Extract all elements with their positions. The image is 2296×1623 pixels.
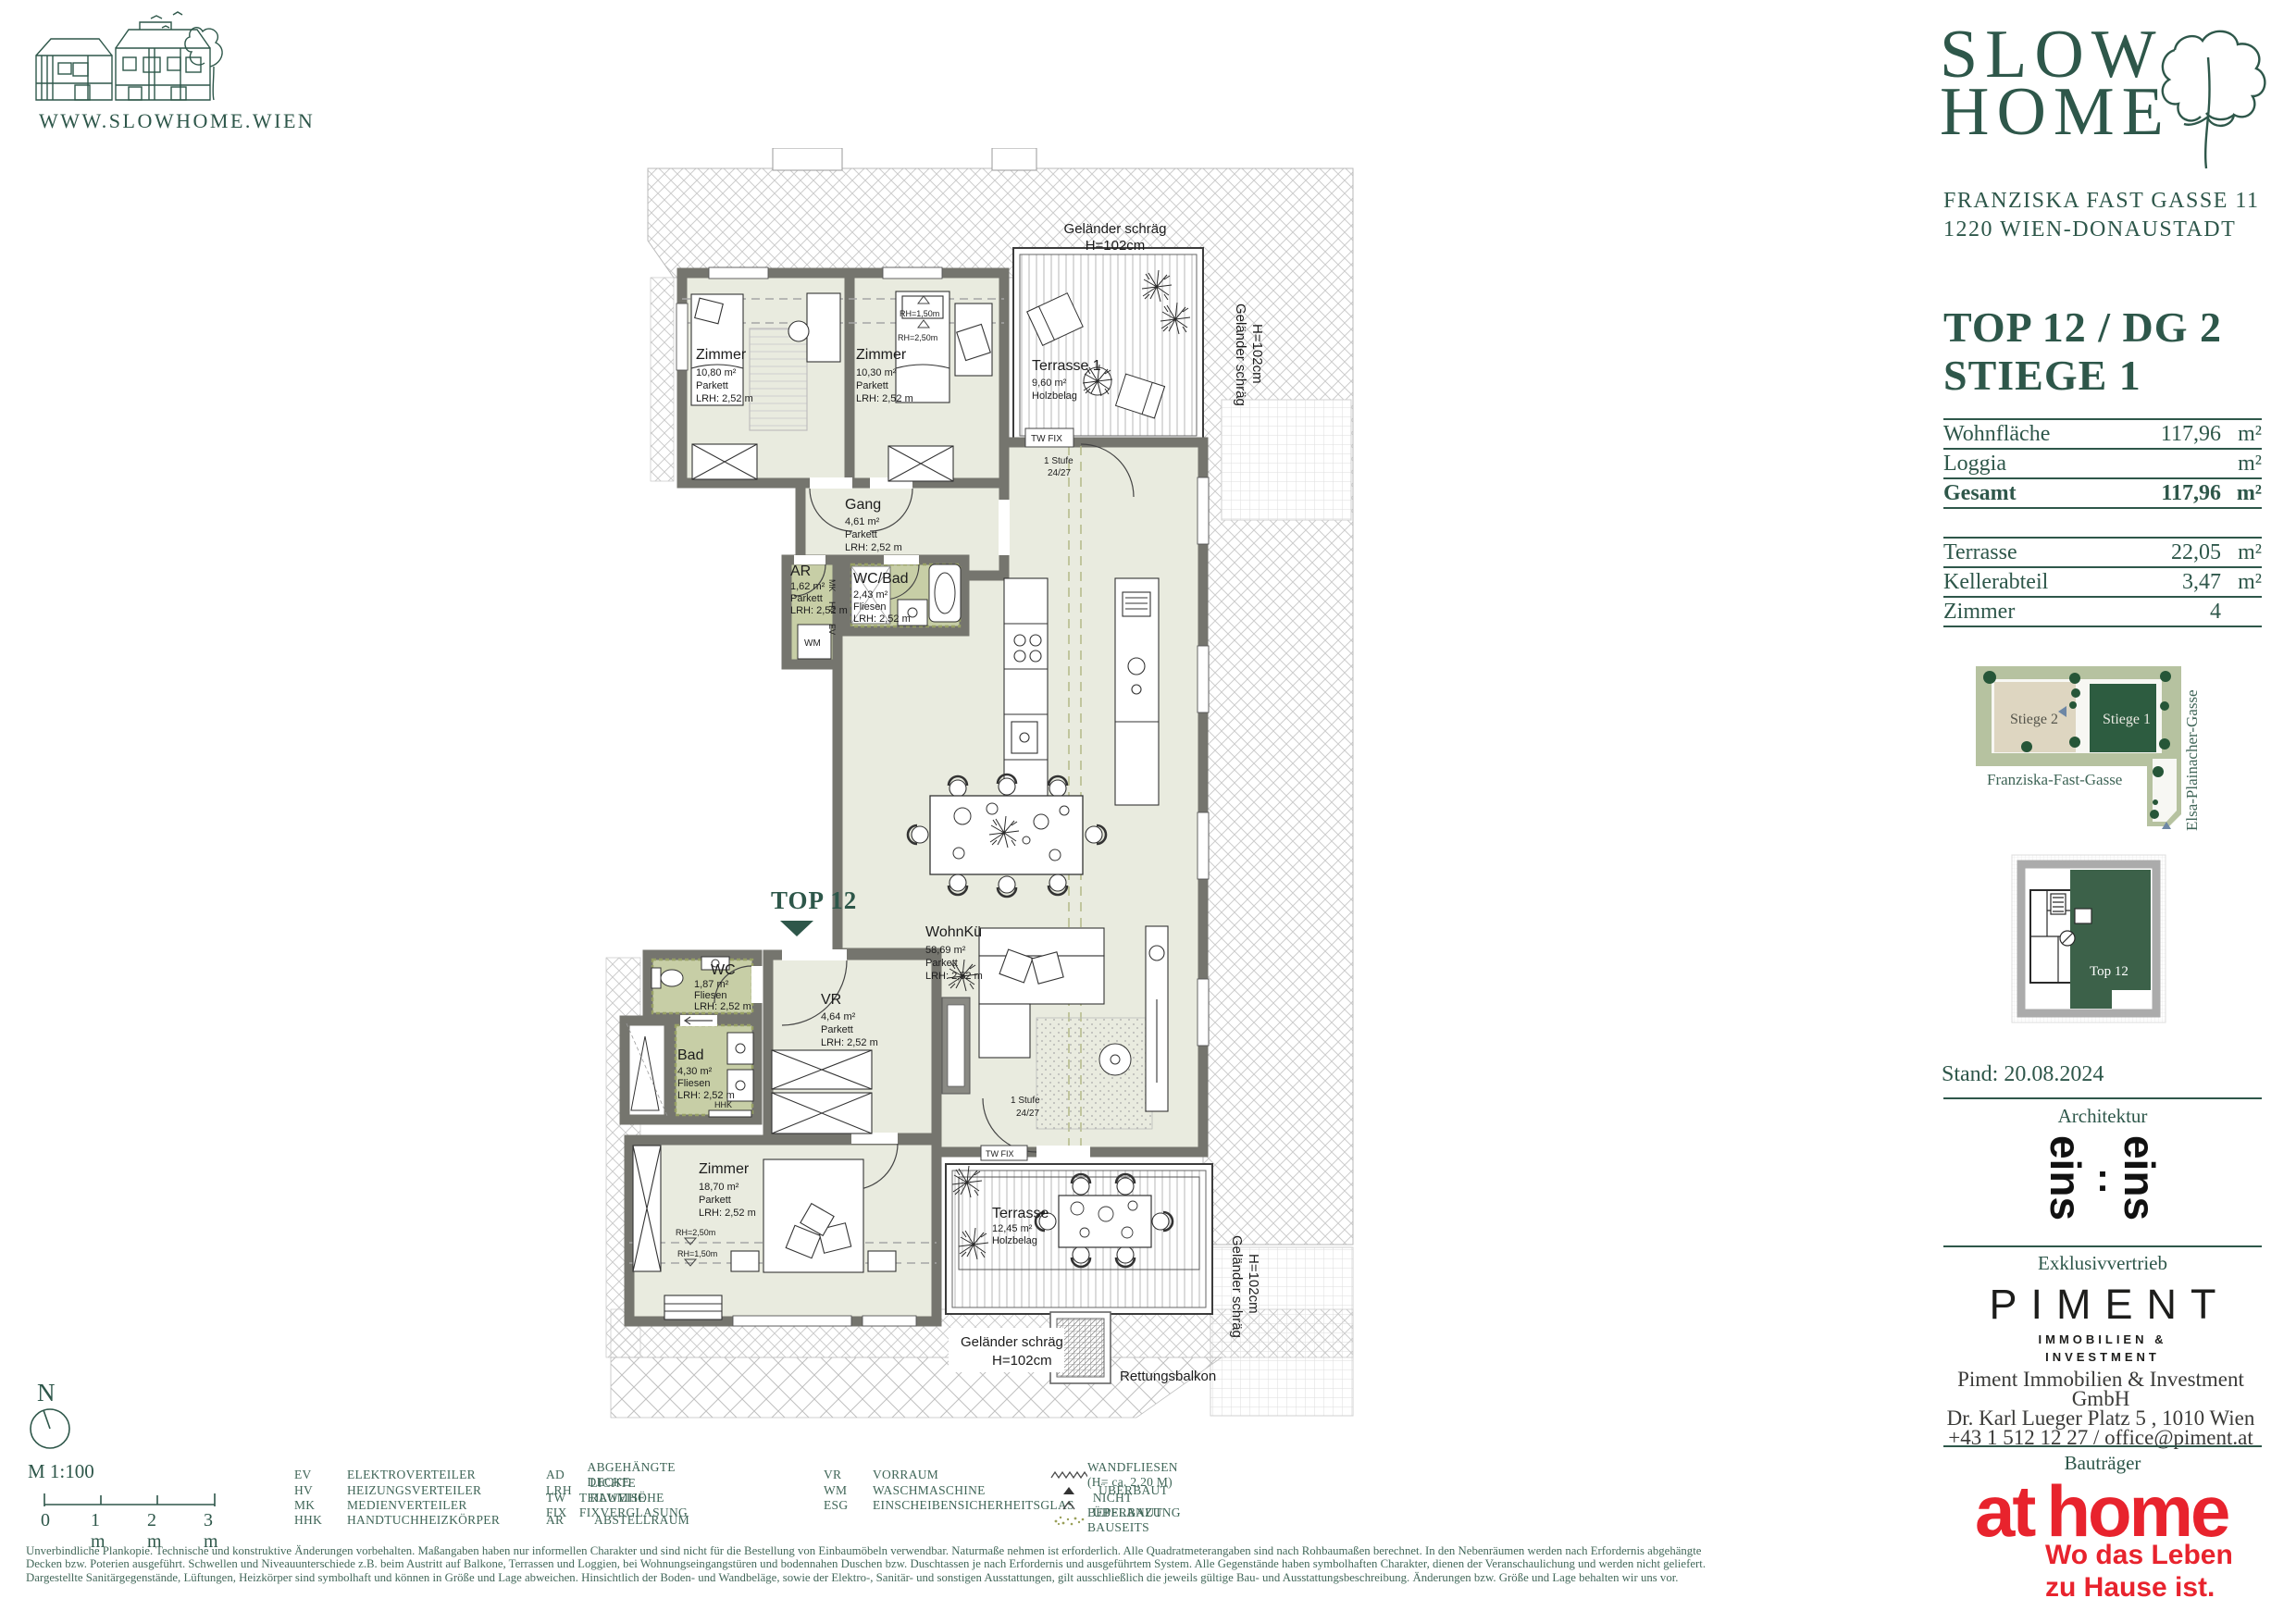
logo-word-home: HOME	[1940, 83, 2171, 141]
room-name: AR	[790, 564, 811, 579]
slowhome-logo: SLOW HOME	[1940, 26, 2171, 141]
floor-plan-drawing: Terrasse 1 9,60 m² Holzbelag	[574, 148, 1370, 1462]
room-name: Terrasse 1	[1032, 358, 1101, 374]
room-lrh: LRH: 2,52 m	[853, 613, 911, 625]
area-table: Wohnfläche 117,96 m² Loggia m² Gesamt 11…	[1943, 418, 2262, 627]
piment-contact: Piment Immobilien & Investment GmbH Dr. …	[1934, 1369, 2267, 1447]
room-area: 12,45 m²	[992, 1223, 1033, 1234]
floorplan-sheet: WWW.SLOWHOME.WIEN SLOW HOME FRANZISKA FA…	[0, 0, 2296, 1623]
legend-item: HHKHANDTUCHHEIZKÖRPER	[294, 1513, 500, 1528]
disclaimer-line3: Dargestellte Sanitärgegenstände, Lüftung…	[26, 1571, 1923, 1584]
twfix-label: TW FIX	[1031, 434, 1062, 444]
address-line-2: 1220 WIEN-DONAUSTADT	[1943, 216, 2259, 244]
stufe-label: 24/27	[1048, 468, 1071, 478]
tree-logo-icon	[2143, 20, 2273, 173]
sideboard-icon	[1146, 926, 1168, 1111]
room-name: Bad	[677, 1047, 703, 1063]
legend-item: ARABSTELLRAUM	[546, 1513, 702, 1528]
svg-text:Geländer schräg: Geländer schräg	[1233, 304, 1248, 406]
table-row: Wohnfläche 117,96 m²	[1943, 418, 2262, 448]
chair-icon	[788, 321, 809, 341]
site-plan: Stiege 2 Stiege 1 Franziska-Fast-Gasse E…	[1971, 659, 2249, 844]
einszueins-architektur-logo: eins : eins	[2027, 1121, 2178, 1234]
room-lrh: LRH: 2,52 m	[925, 971, 983, 982]
svg-text:RH=1,50m: RH=1,50m	[900, 309, 939, 318]
room-lrh: LRH: 2,52 m	[694, 1001, 751, 1012]
room-name: WC/Bad	[853, 571, 909, 587]
athome-part1: at	[1975, 1470, 2033, 1552]
room-area: 58,69 m²	[925, 945, 966, 956]
piment-address: Dr. Karl Lueger Platz 5 , 1010 Wien	[1934, 1408, 2267, 1428]
unit-title-line1: TOP 12 / DG 2	[1943, 304, 2222, 352]
plan-date: Stand: 20.08.2024	[1942, 1062, 2104, 1087]
room-floor: Fliesen	[853, 601, 886, 613]
athome-tagline: Wo das Leben zu Hause ist.	[2045, 1539, 2233, 1604]
room-area: 4,30 m²	[677, 1066, 713, 1077]
table-row: Zimmer 4	[1943, 596, 2262, 626]
stufe-label: 1 Stufe	[1011, 1096, 1040, 1106]
piment-logo: PIMENT	[1943, 1281, 2262, 1329]
legend-column-2: ADABGEHÄNGTE DECKE LRHLICHTE RAUMHÖHE TW…	[546, 1468, 702, 1529]
table-row-total: Gesamt 117,96 m²	[1943, 477, 2262, 507]
legend-symbol-item: WANDFLIESEN (H= ca. 2,20 M)	[1050, 1468, 1192, 1482]
project-address: FRANZISKA FAST GASSE 11 1220 WIEN-DONAUS…	[1943, 187, 2259, 244]
row-unit: m²	[2221, 481, 2262, 506]
street-label-bottom: Franziska-Fast-Gasse	[1987, 771, 2122, 788]
piment-sub-line1: IMMOBILIEN &	[1943, 1331, 2262, 1348]
row-value: 22,05	[2141, 540, 2221, 565]
room-floor: Fliesen	[694, 990, 726, 1001]
ev-label: EV	[827, 624, 837, 635]
svg-text:RH=2,50m: RH=2,50m	[676, 1228, 715, 1237]
kitchen-island	[1115, 578, 1159, 805]
wm-label: WM	[804, 638, 821, 649]
room-name: Gang	[845, 497, 881, 513]
terrasse-2: Terrasse 12,45 m² Holzbelag	[946, 1164, 1212, 1314]
room-name: Zimmer	[699, 1161, 750, 1177]
top12-marker-label: TOP 12	[771, 886, 857, 914]
nightstand-icon	[731, 1251, 759, 1271]
room-floor: Parkett	[845, 529, 877, 540]
row-value: 3,47	[2141, 570, 2221, 595]
tagline-line2: zu Hause ist.	[2045, 1571, 2233, 1604]
rettungsbalkon-label: Rettungsbalkon	[1120, 1369, 1216, 1384]
desk-icon	[807, 293, 840, 362]
site-stiege1-label: Stiege 1	[2103, 712, 2151, 727]
row-label: Gesamt	[1943, 481, 2141, 506]
legend-column-symbols: WANDFLIESEN (H= ca. 2,20 M) ÜBERBAUT NIC…	[1050, 1468, 1192, 1529]
twfix-label: TW FIX	[986, 1149, 1014, 1158]
row-label: Terrasse	[1943, 540, 2141, 565]
room-lrh: LRH: 2,52 m	[856, 393, 913, 404]
room-area: 10,30 m²	[856, 367, 897, 378]
area-table-group-living: Wohnfläche 117,96 m² Loggia m² Gesamt 11…	[1943, 418, 2262, 509]
piment-phone-email: +43 1 512 12 27 / office@piment.at	[1934, 1428, 2267, 1447]
terrasse-1: Terrasse 1 9,60 m² Holzbelag	[1013, 248, 1203, 442]
table-row: Loggia m²	[1943, 448, 2262, 477]
kitchen-counter	[1004, 578, 1048, 805]
legend-item: EVELEKTROVERTEILER	[294, 1468, 500, 1482]
divider	[1943, 1097, 2262, 1099]
room-lrh: LRH: 2,52 m	[845, 542, 902, 553]
row-value: 4	[2141, 600, 2221, 625]
row-label: Wohnfläche	[1943, 422, 2141, 447]
divider	[1943, 1245, 2262, 1247]
table-row: Terrasse 22,05 m²	[1943, 537, 2262, 566]
room-area: 10,80 m²	[696, 367, 737, 378]
stufe-label: 1 Stufe	[1044, 456, 1074, 466]
top12-arrow-icon	[780, 921, 813, 936]
building-sketch-illustration	[32, 11, 227, 107]
website-url: WWW.SLOWHOME.WIEN	[39, 109, 315, 133]
scale-label: M 1:100	[28, 1460, 94, 1483]
eins-word-left: eins	[2041, 1135, 2091, 1220]
room-floor: Parkett	[856, 380, 888, 391]
tagline-line1: Wo das Leben	[2045, 1539, 2233, 1571]
row-unit: m²	[2221, 452, 2262, 477]
piment-company: Piment Immobilien & Investment GmbH	[1934, 1369, 2267, 1408]
row-label: Zimmer	[1943, 600, 2141, 625]
nightstand-icon	[868, 1251, 896, 1271]
svg-text:RH=2,50m: RH=2,50m	[898, 333, 937, 342]
legend-column-1: EVELEKTROVERTEILER HVHEIZUNGSVERTEILER M…	[294, 1468, 500, 1529]
room-floor: Parkett	[925, 958, 958, 969]
unit-title: TOP 12 / DG 2 STIEGE 1	[1943, 304, 2222, 400]
svg-text:Geländer schräg: Geländer schräg	[961, 1334, 1063, 1350]
room-area: 4,61 m²	[845, 516, 880, 527]
room-area: 1,62 m²	[790, 581, 825, 592]
room-name: Zimmer	[856, 347, 907, 363]
room-lrh: LRH: 2,52 m	[821, 1037, 878, 1048]
exterior-step	[664, 1295, 722, 1319]
unit-title-line2: STIEGE 1	[1943, 352, 2222, 400]
room-name: WC	[711, 962, 736, 978]
room-floor: Parkett	[696, 380, 728, 391]
hv-label: HV	[827, 601, 837, 613]
row-value: 117,96	[2141, 481, 2221, 506]
row-label: Loggia	[1943, 452, 2141, 477]
legend-item: VRVORRAUM	[824, 1468, 1074, 1482]
divider	[1943, 1445, 2262, 1447]
row-label: Kellerabteil	[1943, 570, 2141, 595]
room-area: 2,43 m²	[853, 589, 888, 601]
area-table-group-extras: Terrasse 22,05 m² Kellerabteil 3,47 m² Z…	[1943, 537, 2262, 627]
room-lrh: LRH: 2,52 m	[699, 1208, 756, 1219]
legend-item: WMWASCHMASCHINE	[824, 1482, 1074, 1497]
room-area: 9,60 m²	[1032, 378, 1067, 389]
disclaimer-line1: Unverbindliche Plankopie. Technische und…	[26, 1544, 1923, 1557]
rug-icon	[750, 328, 807, 430]
hhk-label: HHK	[714, 1100, 732, 1109]
rug-icon	[1036, 1018, 1152, 1129]
room-lrh: LRH: 2,52 m	[790, 605, 848, 616]
open-triangle-icon	[1050, 1500, 1093, 1511]
scale-bar	[28, 1488, 231, 1516]
svg-text:Geländer schräg: Geländer schräg	[1064, 221, 1167, 237]
stufe-label: 24/27	[1016, 1109, 1039, 1119]
room-floor: Holzbelag	[1032, 390, 1077, 402]
legend-symbol-item: BEPFLANZUNG BAUSEITS	[1050, 1513, 1192, 1528]
legend-column-3: VRVORRAUM WMWASCHMASCHINE ESGEINSCHEIBEN…	[824, 1468, 1074, 1513]
room-floor: Parkett	[790, 593, 823, 604]
plant-dots-icon	[1050, 1514, 1087, 1527]
north-label: N	[37, 1379, 56, 1407]
diagram-top12-area	[2070, 870, 2151, 1009]
north-compass-icon	[26, 1405, 78, 1453]
svg-text:RH=1,50m: RH=1,50m	[677, 1249, 717, 1258]
coffee-table-icon	[1099, 1044, 1131, 1075]
svg-text:H=102cm: H=102cm	[1086, 238, 1146, 254]
svg-text:Geländer schräg: Geländer schräg	[1229, 1235, 1245, 1338]
table-gap	[1943, 509, 2262, 537]
eins-word-right: eins	[2115, 1135, 2165, 1220]
room-area: 1,87 m²	[694, 979, 729, 990]
legend-item: ESGEINSCHEIBENSICHERHEITSGLAS	[824, 1498, 1074, 1513]
piment-logo-subline: IMMOBILIEN & INVESTMENT	[1943, 1331, 2262, 1366]
row-unit: m²	[2221, 570, 2262, 595]
eins-colon: :	[2091, 1156, 2115, 1200]
room-area: 18,70 m²	[699, 1182, 739, 1193]
room-name: Terrasse	[992, 1206, 1049, 1221]
row-unit: m²	[2221, 422, 2262, 447]
row-value: 117,96	[2141, 422, 2221, 447]
table-row: Kellerabteil 3,47 m²	[1943, 566, 2262, 596]
svg-text:H=102cm: H=102cm	[1246, 1254, 1261, 1314]
legend-item: HVHEIZUNGSVERTEILER	[294, 1482, 500, 1497]
shower-cell	[625, 1021, 669, 1120]
svg-text:H=102cm: H=102cm	[992, 1353, 1052, 1369]
room-name: VR	[821, 992, 841, 1008]
diagram-top12-label: Top 12	[2090, 964, 2128, 979]
room-name: WohnKü	[925, 924, 982, 940]
exklusivvertrieb-label: Exklusivvertrieb	[1943, 1252, 2262, 1275]
zigzag-line-icon	[1050, 1469, 1087, 1481]
site-stiege2-label: Stiege 2	[2010, 712, 2058, 727]
address-line-1: FRANZISKA FAST GASSE 11	[1943, 187, 2259, 216]
room-area: 4,64 m²	[821, 1011, 856, 1022]
room-name: Zimmer	[696, 347, 747, 363]
room-floor: Parkett	[699, 1195, 731, 1206]
room-floor: Holzbelag	[992, 1235, 1037, 1246]
mk-label: MK	[827, 579, 837, 592]
tick-0: 0	[41, 1510, 50, 1531]
svg-text:H=102cm: H=102cm	[1249, 324, 1265, 384]
filled-triangle-icon	[1050, 1485, 1098, 1496]
row-unit: m²	[2221, 540, 2262, 565]
room-floor: Fliesen	[677, 1078, 710, 1089]
piment-sub-line2: INVESTMENT	[1943, 1348, 2262, 1366]
street-label-right: Elsa-Plainacher-Gasse	[2183, 689, 2201, 831]
floor-position-diagram: Top 12	[2010, 853, 2167, 1024]
room-floor: Parkett	[821, 1024, 853, 1035]
disclaimer-line2: Decken bzw. Poterien ausgeführt. Schwell…	[26, 1557, 1923, 1570]
legend-item: MKMEDIENVERTEILER	[294, 1498, 500, 1513]
disclaimer-text: Unverbindliche Plankopie. Technische und…	[26, 1544, 1923, 1584]
room-lrh: LRH: 2,52 m	[696, 393, 753, 404]
legend-item: TW FIXTEILWEISE FIXVERGLASUNG	[546, 1498, 702, 1513]
